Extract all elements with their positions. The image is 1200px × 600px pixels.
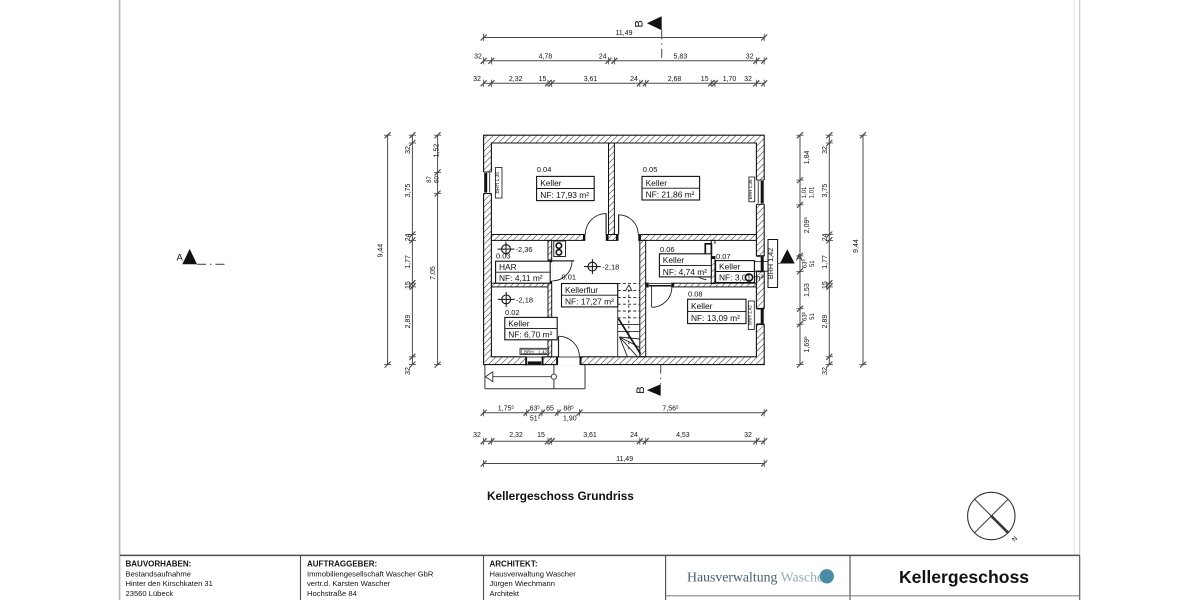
svg-text:1,01: 1,01 xyxy=(802,186,808,198)
svg-text:32: 32 xyxy=(822,367,829,375)
svg-text:BRH 1,36: BRH 1,36 xyxy=(748,179,753,199)
svg-text:B: B xyxy=(634,20,646,27)
svg-text:1,77: 1,77 xyxy=(405,255,412,269)
svg-text:32: 32 xyxy=(744,76,752,83)
svg-text:32: 32 xyxy=(474,54,482,61)
svg-text:1,70: 1,70 xyxy=(723,76,737,83)
svg-text:Hochstraße 84: Hochstraße 84 xyxy=(307,589,357,598)
svg-text:AUFTRAGGEBER:: AUFTRAGGEBER: xyxy=(307,560,377,569)
svg-text:-2,18: -2,18 xyxy=(516,295,533,304)
svg-text:4,53: 4,53 xyxy=(676,432,690,439)
svg-text:32: 32 xyxy=(473,76,481,83)
svg-text:Kellergeschoss: Kellergeschoss xyxy=(899,567,1029,587)
svg-text:2,89: 2,89 xyxy=(822,315,829,329)
svg-text:32: 32 xyxy=(405,367,412,375)
svg-text:BRH 1,42: BRH 1,42 xyxy=(747,305,752,325)
svg-text:NF: 6,70 m²: NF: 6,70 m² xyxy=(508,330,552,340)
svg-text:vertr.d. Karsten Wascher: vertr.d. Karsten Wascher xyxy=(307,579,391,588)
svg-text:2,89: 2,89 xyxy=(405,315,412,329)
svg-text:24: 24 xyxy=(599,54,607,61)
svg-text:BAUVORHABEN:: BAUVORHABEN: xyxy=(126,560,192,569)
svg-text:32: 32 xyxy=(473,432,481,439)
svg-text:HAR: HAR xyxy=(499,262,517,272)
svg-text:0.08: 0.08 xyxy=(688,290,703,299)
svg-text:87: 87 xyxy=(427,176,433,183)
svg-text:Keller: Keller xyxy=(646,178,668,188)
svg-text:1,01: 1,01 xyxy=(810,186,816,198)
svg-text:32: 32 xyxy=(405,146,412,154)
svg-text:15: 15 xyxy=(537,432,545,439)
svg-text:-2,18: -2,18 xyxy=(602,263,619,272)
svg-text:Hinter den Kirschkaten 31: Hinter den Kirschkaten 31 xyxy=(126,579,213,588)
svg-text:24: 24 xyxy=(630,76,638,83)
svg-text:7,05: 7,05 xyxy=(430,266,437,280)
svg-text:24: 24 xyxy=(405,233,412,241)
svg-text:65: 65 xyxy=(546,405,554,412)
svg-text:NF: 21,86 m²: NF: 21,86 m² xyxy=(646,190,695,200)
svg-text:1,77: 1,77 xyxy=(822,255,829,269)
svg-text:Keller: Keller xyxy=(663,255,685,265)
svg-text:Jürgen Wiechmann: Jürgen Wiechmann xyxy=(490,579,555,588)
svg-text:51: 51 xyxy=(810,260,816,267)
svg-text:3,75: 3,75 xyxy=(405,184,412,198)
svg-text:Immobiliengesellschaft Wascher: Immobiliengesellschaft Wascher GbR xyxy=(307,569,434,578)
svg-text:NF: 3,01 m²: NF: 3,01 m² xyxy=(719,272,763,282)
svg-text:23560 Lübeck: 23560 Lübeck xyxy=(126,589,174,598)
svg-text:0.07: 0.07 xyxy=(716,252,731,261)
svg-text:1,84: 1,84 xyxy=(804,150,811,164)
svg-text:51: 51 xyxy=(810,313,816,320)
svg-text:0.01: 0.01 xyxy=(562,273,577,282)
svg-text:2,32: 2,32 xyxy=(509,432,523,439)
svg-text:0.05: 0.05 xyxy=(643,165,658,174)
svg-text:Bestandsaufnahme: Bestandsaufnahme xyxy=(126,569,191,578)
svg-text:Architekt: Architekt xyxy=(490,589,520,598)
svg-text:2,68: 2,68 xyxy=(668,76,682,83)
svg-text:11,49: 11,49 xyxy=(616,456,633,463)
svg-text:BRH: BRH xyxy=(524,349,534,354)
svg-text:0.06: 0.06 xyxy=(660,245,675,254)
svg-text:3,75: 3,75 xyxy=(822,184,829,198)
svg-text:BRH 1,36: BRH 1,36 xyxy=(495,172,501,194)
svg-text:2,32: 2,32 xyxy=(509,76,523,83)
svg-text:0.04: 0.04 xyxy=(537,165,552,174)
svg-text:BRH 1,42: BRH 1,42 xyxy=(766,248,775,279)
svg-text:4,78: 4,78 xyxy=(539,54,553,61)
svg-text:1,53: 1,53 xyxy=(804,283,811,297)
svg-text:5,83: 5,83 xyxy=(673,54,687,61)
svg-text:32: 32 xyxy=(746,54,754,61)
svg-text:0.02: 0.02 xyxy=(505,308,520,317)
svg-text:32: 32 xyxy=(744,432,752,439)
svg-text:Hausverwaltung Wascher: Hausverwaltung Wascher xyxy=(490,569,577,578)
svg-text:11,49: 11,49 xyxy=(616,30,633,37)
svg-text:3,61: 3,61 xyxy=(584,76,598,83)
svg-text:ARCHITEKT:: ARCHITEKT: xyxy=(490,560,538,569)
svg-text:24: 24 xyxy=(822,233,829,241)
svg-text:15: 15 xyxy=(405,281,412,289)
svg-text:Keller: Keller xyxy=(691,301,713,311)
svg-text:-2,36: -2,36 xyxy=(516,245,533,254)
svg-text:9,44: 9,44 xyxy=(853,239,860,253)
svg-text:NF: 17,27 m²: NF: 17,27 m² xyxy=(565,297,614,307)
svg-text:Hausverwaltung Wascher: Hausverwaltung Wascher xyxy=(687,570,828,585)
svg-text:15: 15 xyxy=(822,281,829,289)
svg-text:Keller: Keller xyxy=(508,318,530,328)
svg-text:32: 32 xyxy=(822,146,829,154)
svg-text:1,90: 1,90 xyxy=(563,416,577,423)
svg-text:3,61: 3,61 xyxy=(583,432,597,439)
svg-text:24: 24 xyxy=(630,432,638,439)
svg-text:Kellergeschoss Grundriss: Kellergeschoss Grundriss xyxy=(487,489,634,503)
svg-text:B: B xyxy=(635,386,647,393)
svg-text:NF: 4,74 m²: NF: 4,74 m² xyxy=(663,267,707,277)
svg-text:15: 15 xyxy=(701,76,709,83)
svg-text:Keller: Keller xyxy=(719,261,741,271)
svg-text:Kellerflur: Kellerflur xyxy=(565,285,598,295)
svg-text:9,44: 9,44 xyxy=(377,244,384,258)
svg-text:A: A xyxy=(177,253,184,264)
svg-text:1,42: 1,42 xyxy=(538,349,547,354)
svg-text:15: 15 xyxy=(539,76,547,83)
svg-text:60: 60 xyxy=(434,176,440,183)
svg-text:0.03: 0.03 xyxy=(496,252,511,261)
svg-text:Keller: Keller xyxy=(540,178,562,188)
svg-text:NF: 13,09 m²: NF: 13,09 m² xyxy=(691,313,740,323)
svg-text:NF: 17,93 m²: NF: 17,93 m² xyxy=(540,190,589,200)
svg-text:NF: 4,11 m²: NF: 4,11 m² xyxy=(499,273,543,283)
svg-text:1,52: 1,52 xyxy=(434,144,441,158)
